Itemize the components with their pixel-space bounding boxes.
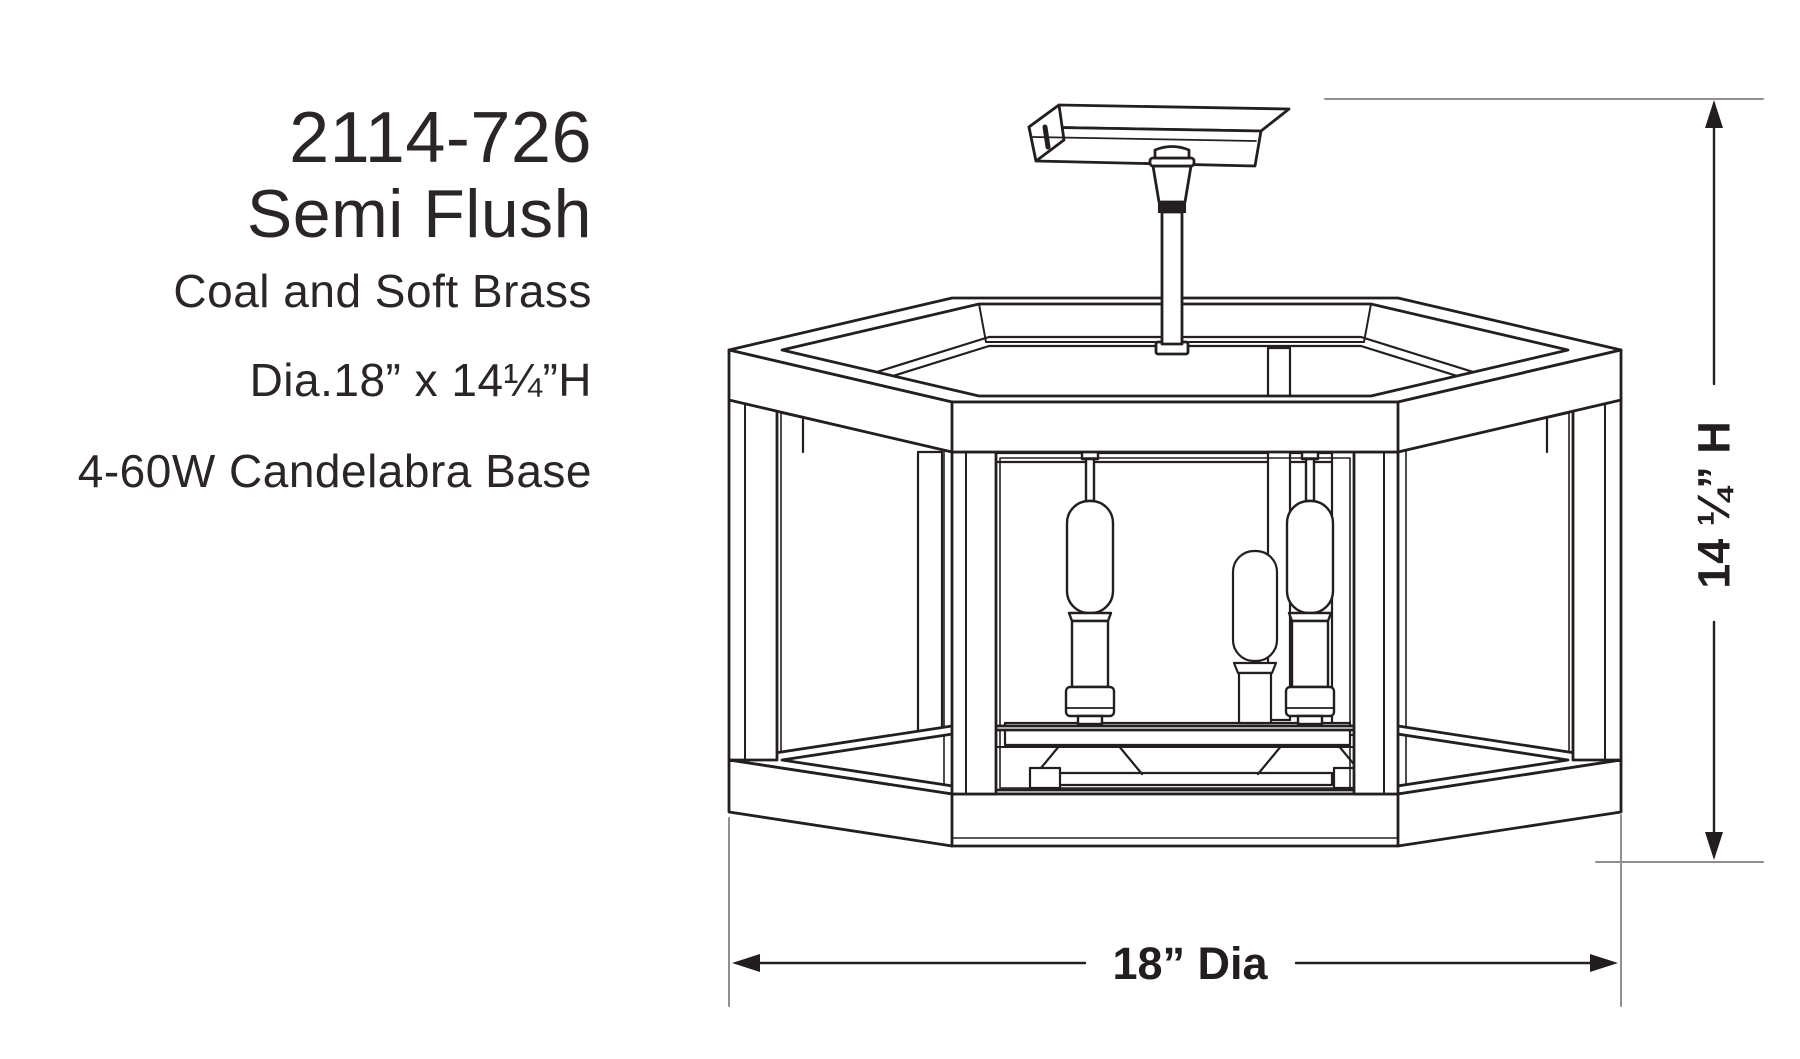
- socket-front-right: [1286, 687, 1334, 716]
- socket-front-left: [1066, 687, 1114, 716]
- product-mount-type: Semi Flush: [0, 180, 592, 254]
- height-dimension-label: 14 ¼” H: [1689, 421, 1740, 589]
- stem-nipple: [1155, 147, 1189, 159]
- product-lamping: 4-60W Candelabra Base: [0, 432, 592, 518]
- diameter-dimension-label: 18” Dia: [1112, 938, 1268, 989]
- post-front-left: [952, 452, 996, 794]
- post-right: [1573, 400, 1621, 760]
- stem-collar: [1153, 166, 1191, 202]
- candle-front-right: [1286, 449, 1334, 724]
- stem-tube: [1162, 212, 1182, 344]
- mounting-stem: [1150, 147, 1194, 355]
- canopy-slot: [1045, 127, 1048, 147]
- post-left: [729, 400, 777, 760]
- bulb-front-left: [1067, 501, 1113, 613]
- candle-front-left: [1066, 449, 1114, 724]
- fixture-drawing: [729, 105, 1621, 846]
- post-front-right: [1354, 452, 1398, 794]
- product-size: Dia.18” x 14¼”H: [0, 341, 592, 432]
- spec-sheet-page: 2114-726 Semi Flush Coal and Soft Brass …: [0, 0, 1800, 1059]
- cross-arm-assembly: [1005, 723, 1364, 788]
- product-finish: Coal and Soft Brass: [0, 254, 592, 341]
- arrow-down-icon: [1705, 832, 1723, 860]
- stem-black-band: [1158, 202, 1186, 213]
- bulb-back: [1233, 551, 1277, 661]
- product-info-block: 2114-726 Semi Flush Coal and Soft Brass …: [0, 102, 592, 518]
- arrow-up-icon: [1705, 100, 1723, 128]
- candle-back: [1233, 551, 1277, 723]
- arrow-right-icon: [1590, 954, 1618, 972]
- arrow-left-icon: [732, 954, 760, 972]
- bulb-front-right: [1287, 501, 1333, 613]
- product-model: 2114-726: [0, 102, 592, 180]
